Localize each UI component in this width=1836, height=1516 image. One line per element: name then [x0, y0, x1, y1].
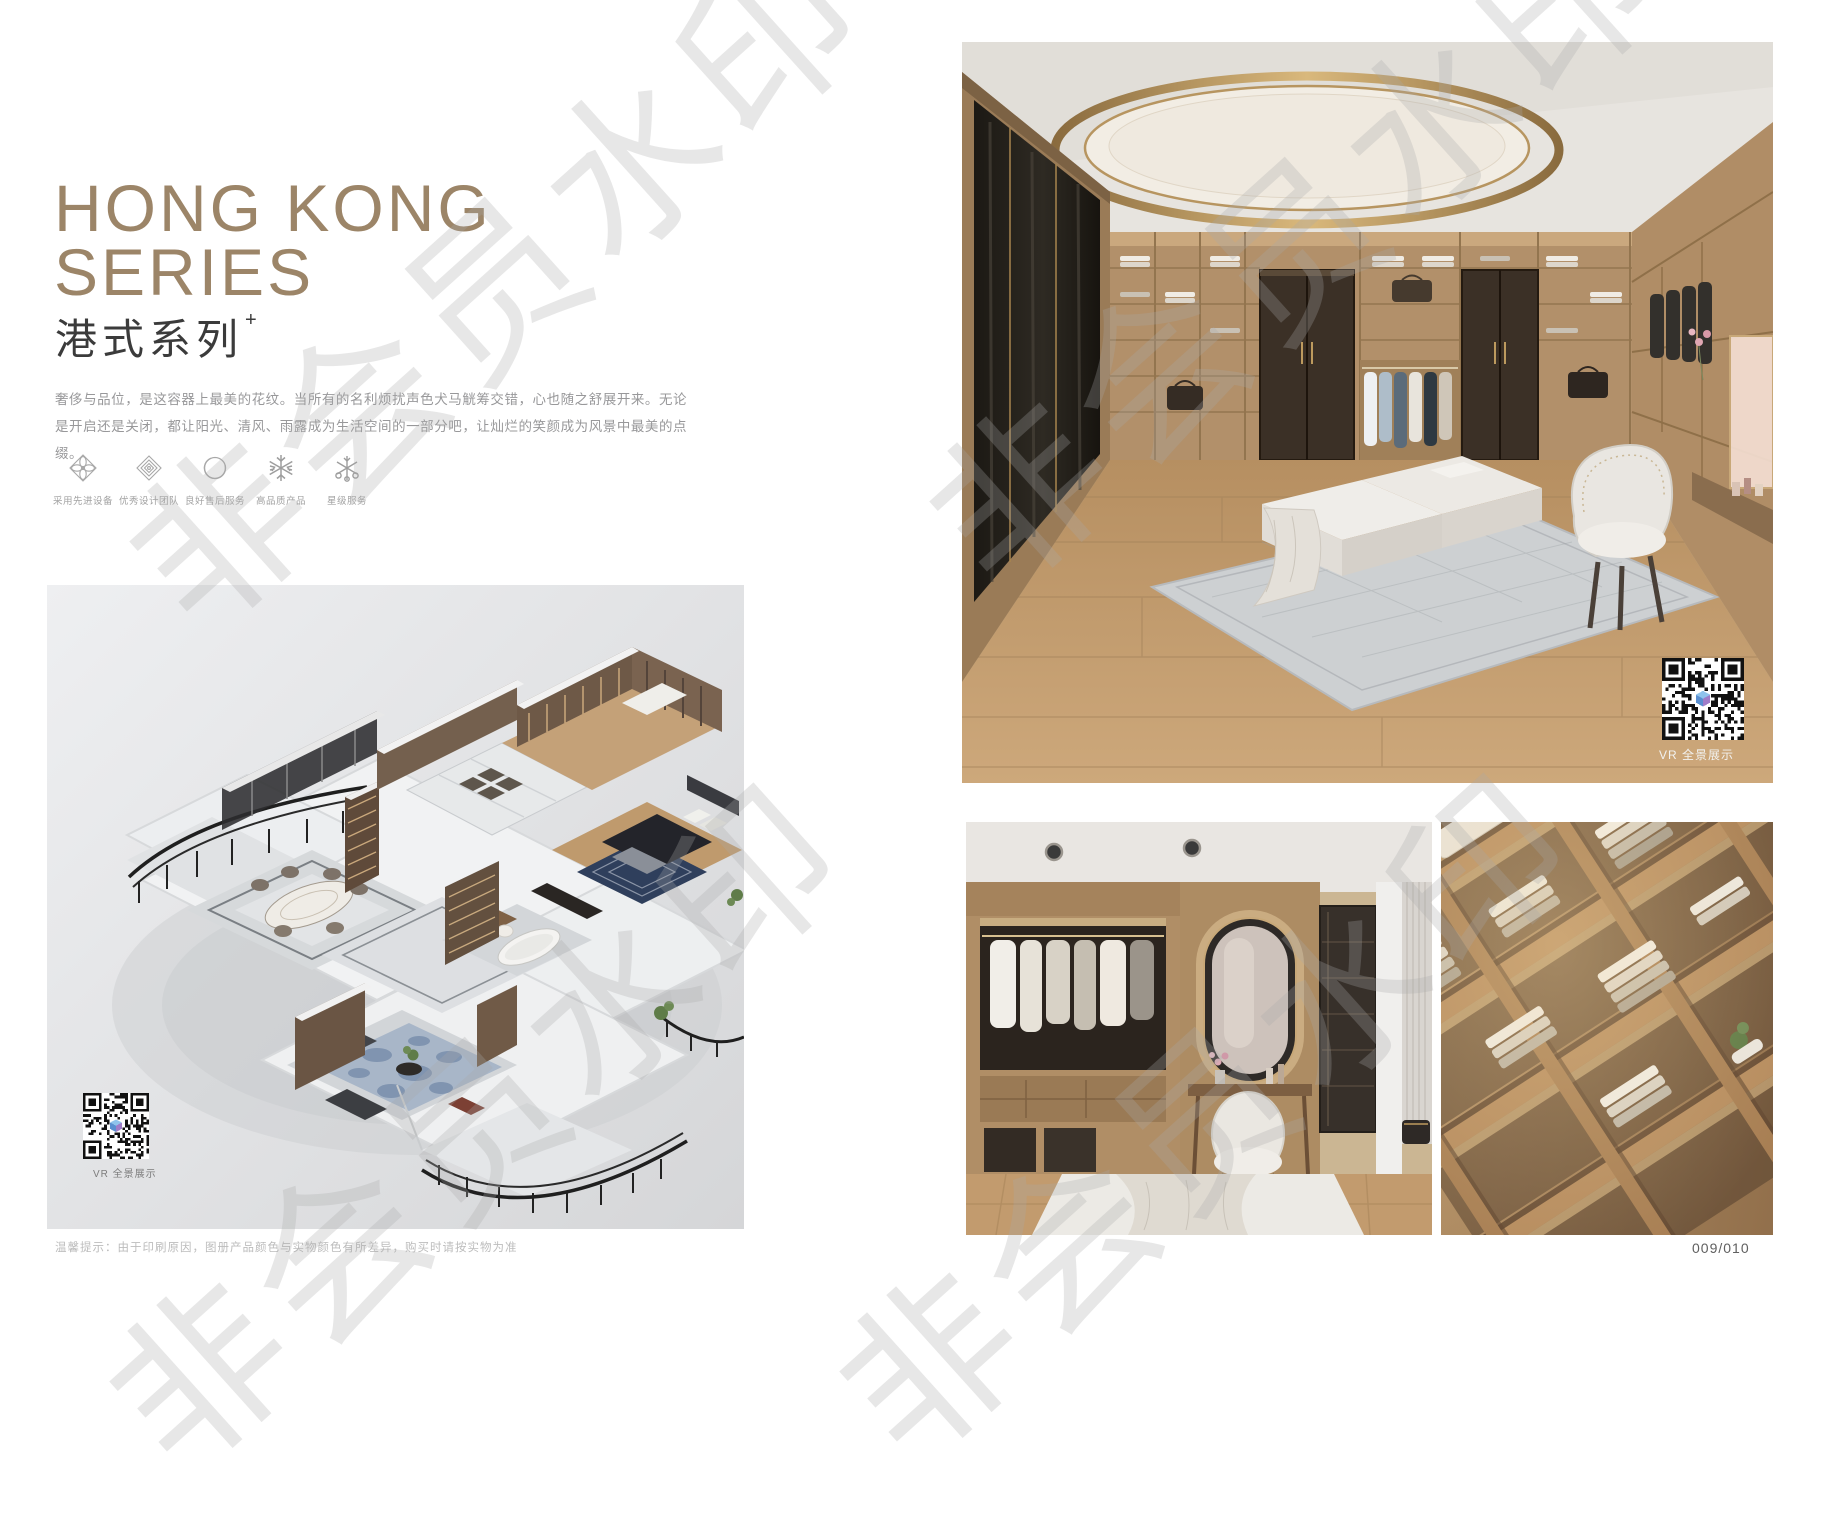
floorplan-image-panel: VR 全景展示: [47, 585, 744, 1229]
floorplan-vr-label: VR 全景展示: [93, 1165, 157, 1180]
snowflake-icon: [248, 452, 314, 484]
ornament-petal-icon: [50, 452, 116, 484]
series-title-cn-text: 港式系列: [55, 316, 243, 363]
series-title-en: HONG KONG SERIES: [54, 176, 492, 304]
walk-in-closet-photo: VR 全景展示: [962, 42, 1773, 783]
feature-icon-row: 采用先进设备 优秀设计团队 良好售后服务 高品质产品: [50, 452, 380, 507]
feature-label: 采用先进设备: [50, 493, 116, 507]
feature-advanced-equipment: 采用先进设备: [50, 452, 116, 507]
feature-star-service: 星级服务: [314, 452, 380, 507]
plus-mark: +: [245, 309, 262, 331]
feature-label: 优秀设计团队: [116, 493, 182, 507]
series-title-line2: SERIES: [54, 240, 492, 304]
feature-label: 高品质产品: [248, 493, 314, 507]
floorplan-vr-qr-code: [83, 1093, 149, 1159]
feature-quality-product: 高品质产品: [248, 452, 314, 507]
main-photo-vr-label: VR 全景展示: [1659, 746, 1734, 763]
print-disclaimer: 温馨提示：由于印刷原因，图册产品颜色与实物颜色有所差异，购买时请按实物为准: [55, 1239, 518, 1255]
page-number: 009/010: [1692, 1240, 1750, 1256]
shelf-closeup-photo: [1441, 822, 1773, 1235]
feature-design-team: 优秀设计团队: [116, 452, 182, 507]
ornament-diamond-icon: [116, 452, 182, 484]
main-photo-vr-qr-code: [1662, 658, 1744, 740]
feature-label: 良好售后服务: [182, 493, 248, 507]
star-service-icon: [314, 452, 380, 484]
dressing-area-photo: [966, 822, 1432, 1235]
ring-icon: [182, 452, 248, 484]
series-title-line1: HONG KONG: [54, 176, 492, 240]
series-title-cn: 港式系列+: [55, 306, 262, 367]
feature-after-sales: 良好售后服务: [182, 452, 248, 507]
feature-label: 星级服务: [314, 493, 380, 507]
isometric-floorplan-render: [47, 585, 744, 1230]
